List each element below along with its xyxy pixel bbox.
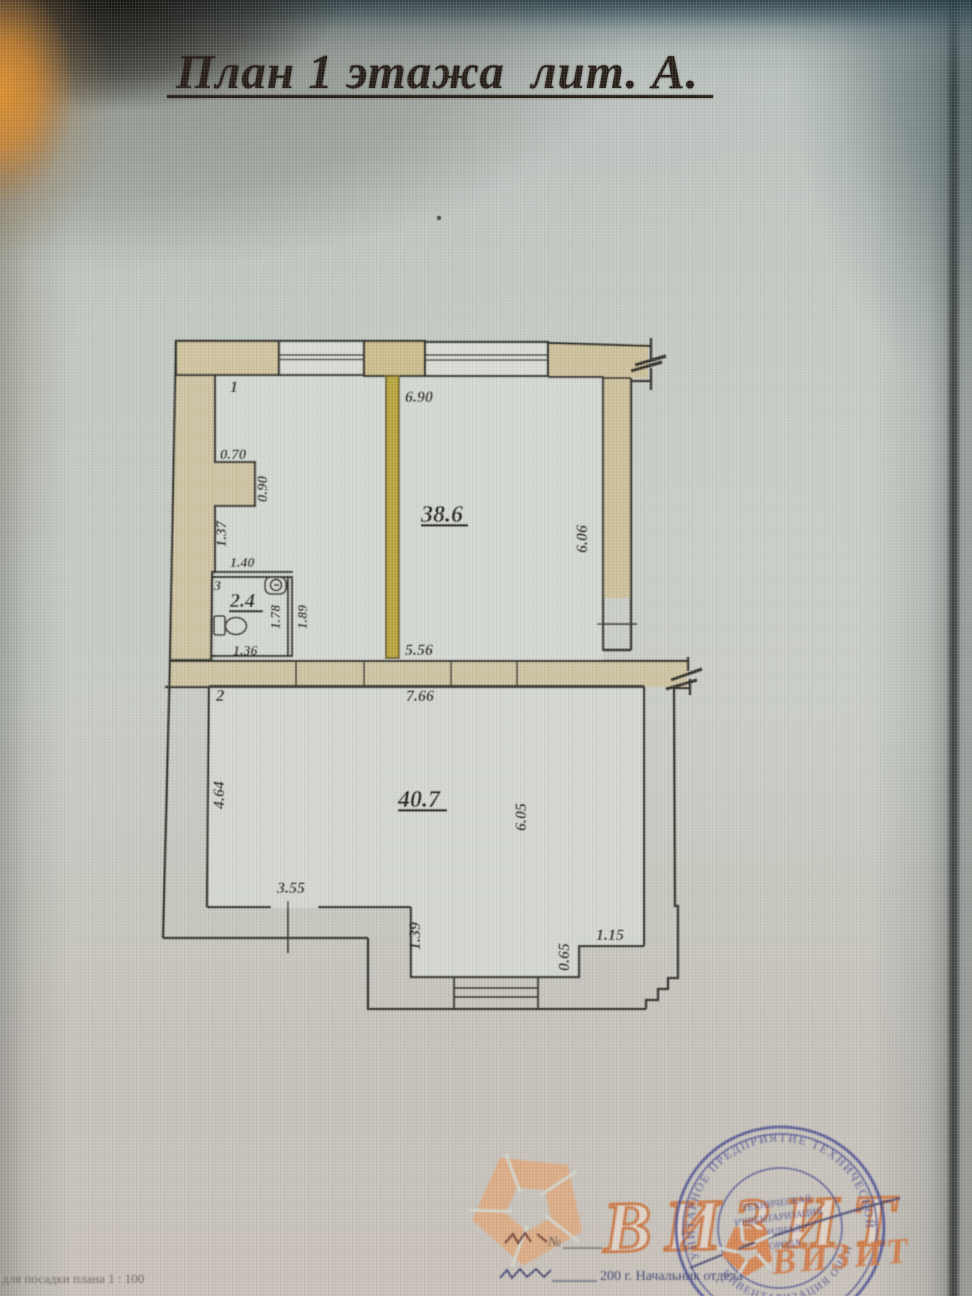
svg-text:200 г. Начальник отдела: 200 г. Начальник отдела: [600, 1269, 744, 1284]
svg-text:ИНВЕНТАРИЗАЦИЯ ОЦЕНКА: ИНВЕНТАРИЗАЦИЯ ОЦЕНКА: [0, 0, 861, 1296]
svg-text:УНИТАРНОЕ ПРЕДПРИЯТИЕ ТЕХНИЧЕС: УНИТАРНОЕ ПРЕДПРИЯТИЕ ТЕХНИЧЕСКОЙ ИНВ: [0, 0, 879, 1296]
svg-text:№: №: [547, 1235, 561, 1250]
svg-text:для посадки плана 1 : 100: для посадки плана 1 : 100: [2, 1271, 144, 1286]
